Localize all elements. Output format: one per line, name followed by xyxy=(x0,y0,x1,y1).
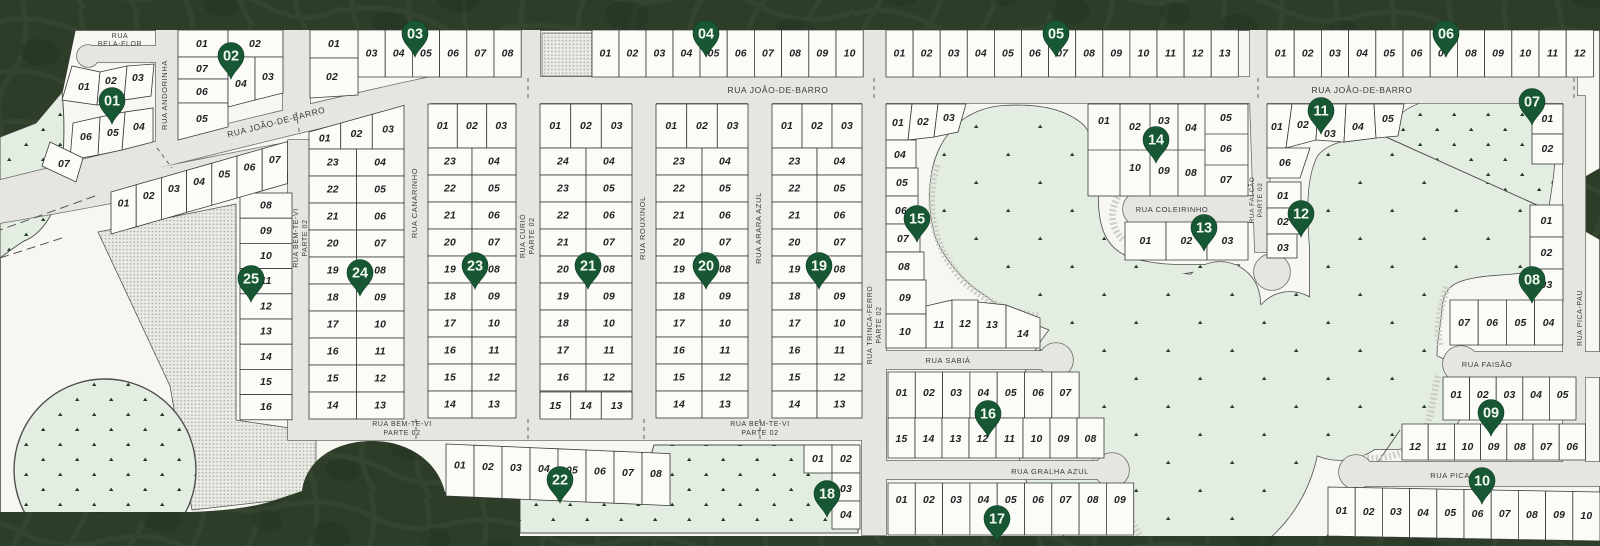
svg-text:10: 10 xyxy=(1138,49,1150,60)
svg-text:12: 12 xyxy=(719,373,731,384)
svg-text:07: 07 xyxy=(374,239,387,250)
svg-text:05: 05 xyxy=(107,128,119,139)
svg-text:16: 16 xyxy=(327,347,339,358)
svg-text:RUA JOÃO-DE-BARRO: RUA JOÃO-DE-BARRO xyxy=(1312,85,1413,95)
svg-text:11: 11 xyxy=(933,320,944,331)
svg-text:17: 17 xyxy=(989,512,1005,528)
svg-text:05: 05 xyxy=(196,114,208,125)
svg-text:23: 23 xyxy=(788,157,801,168)
svg-text:PARTE 02: PARTE 02 xyxy=(1257,183,1264,218)
svg-text:05: 05 xyxy=(834,184,846,195)
svg-text:01: 01 xyxy=(319,133,331,144)
svg-text:18: 18 xyxy=(327,293,339,304)
svg-text:07: 07 xyxy=(1060,388,1073,399)
svg-text:03: 03 xyxy=(366,49,378,60)
svg-text:04: 04 xyxy=(235,79,247,90)
svg-text:02: 02 xyxy=(1181,236,1193,247)
svg-text:02: 02 xyxy=(923,495,935,506)
svg-text:06: 06 xyxy=(1220,144,1232,155)
svg-text:15: 15 xyxy=(896,434,908,445)
svg-text:03: 03 xyxy=(510,463,522,474)
svg-text:06: 06 xyxy=(594,467,606,478)
svg-text:10: 10 xyxy=(1474,474,1490,490)
svg-text:02: 02 xyxy=(1541,248,1553,259)
svg-text:19: 19 xyxy=(557,292,569,303)
svg-text:03: 03 xyxy=(654,49,666,60)
svg-text:08: 08 xyxy=(789,49,801,60)
svg-text:12: 12 xyxy=(488,373,500,384)
svg-text:19: 19 xyxy=(673,265,685,276)
svg-text:05: 05 xyxy=(488,184,500,195)
svg-text:02: 02 xyxy=(840,454,852,465)
svg-text:11: 11 xyxy=(488,346,499,357)
svg-text:20: 20 xyxy=(698,259,714,275)
svg-text:08: 08 xyxy=(1526,510,1538,521)
svg-text:01: 01 xyxy=(781,121,793,132)
svg-text:01: 01 xyxy=(1542,114,1554,125)
svg-text:03: 03 xyxy=(943,113,955,124)
svg-text:09: 09 xyxy=(488,292,500,303)
svg-text:04: 04 xyxy=(978,388,990,399)
svg-text:17: 17 xyxy=(327,320,340,331)
svg-text:04: 04 xyxy=(1417,508,1429,519)
svg-text:14: 14 xyxy=(789,400,801,411)
svg-text:RUA: RUA xyxy=(112,33,129,40)
svg-text:05: 05 xyxy=(1383,49,1395,60)
svg-text:RUA SABIÁ: RUA SABIÁ xyxy=(926,356,971,365)
svg-text:13: 13 xyxy=(1219,49,1231,60)
svg-text:07: 07 xyxy=(1524,95,1540,111)
svg-text:10: 10 xyxy=(374,320,386,331)
svg-text:13: 13 xyxy=(488,400,500,411)
svg-text:03: 03 xyxy=(495,121,507,132)
svg-text:03: 03 xyxy=(262,72,274,83)
svg-text:01: 01 xyxy=(896,495,908,506)
svg-text:02: 02 xyxy=(1542,144,1554,155)
svg-text:19: 19 xyxy=(789,265,801,276)
svg-text:06: 06 xyxy=(1486,318,1498,329)
svg-text:05: 05 xyxy=(1005,495,1017,506)
svg-text:05: 05 xyxy=(1005,388,1017,399)
svg-text:08: 08 xyxy=(834,265,846,276)
svg-text:19: 19 xyxy=(327,266,339,277)
svg-text:06: 06 xyxy=(1279,158,1291,169)
svg-text:06: 06 xyxy=(1032,495,1044,506)
svg-text:22: 22 xyxy=(556,211,569,222)
svg-text:06: 06 xyxy=(244,162,256,173)
svg-text:04: 04 xyxy=(975,49,987,60)
svg-text:10: 10 xyxy=(719,319,731,330)
svg-text:16: 16 xyxy=(980,407,996,423)
svg-text:07: 07 xyxy=(196,64,209,75)
svg-text:09: 09 xyxy=(899,293,911,304)
svg-text:08: 08 xyxy=(488,265,500,276)
svg-text:04: 04 xyxy=(1185,123,1197,134)
svg-text:14: 14 xyxy=(673,400,685,411)
svg-text:12: 12 xyxy=(260,301,272,312)
svg-text:10: 10 xyxy=(260,251,272,262)
svg-text:15: 15 xyxy=(549,401,561,412)
svg-text:02: 02 xyxy=(249,39,261,50)
svg-text:05: 05 xyxy=(1444,508,1456,519)
svg-text:03: 03 xyxy=(727,121,739,132)
svg-text:06: 06 xyxy=(834,211,846,222)
svg-text:08: 08 xyxy=(1087,495,1099,506)
svg-text:RUA FALCÃO: RUA FALCÃO xyxy=(1247,177,1256,224)
svg-text:07: 07 xyxy=(1540,442,1553,453)
svg-text:11: 11 xyxy=(1547,49,1558,60)
svg-text:RUA BEM-TE-VI: RUA BEM-TE-VI xyxy=(293,208,300,268)
svg-text:14: 14 xyxy=(1148,133,1164,149)
svg-text:13: 13 xyxy=(374,401,386,412)
svg-text:RUA FAISÃO: RUA FAISÃO xyxy=(1462,360,1513,369)
svg-text:13: 13 xyxy=(986,320,998,331)
svg-text:07: 07 xyxy=(603,238,616,249)
svg-text:15: 15 xyxy=(909,212,925,228)
svg-text:05: 05 xyxy=(1557,390,1569,401)
svg-text:17: 17 xyxy=(444,319,457,330)
svg-text:10: 10 xyxy=(488,319,500,330)
svg-text:05: 05 xyxy=(896,178,908,189)
svg-text:01: 01 xyxy=(454,461,466,472)
svg-text:10: 10 xyxy=(1129,163,1141,174)
svg-text:09: 09 xyxy=(1110,49,1122,60)
svg-text:08: 08 xyxy=(502,49,514,60)
svg-text:16: 16 xyxy=(260,402,272,413)
svg-text:09: 09 xyxy=(1058,434,1070,445)
svg-text:RUA COLEIRINHO: RUA COLEIRINHO xyxy=(1136,205,1209,214)
svg-text:10: 10 xyxy=(1462,442,1474,453)
svg-text:09: 09 xyxy=(1488,442,1500,453)
svg-text:16: 16 xyxy=(789,346,801,357)
svg-text:01: 01 xyxy=(1277,191,1289,202)
svg-text:11: 11 xyxy=(603,346,614,357)
svg-text:12: 12 xyxy=(1574,49,1586,60)
svg-text:15: 15 xyxy=(260,377,272,388)
svg-text:08: 08 xyxy=(898,262,910,273)
svg-text:03: 03 xyxy=(611,121,623,132)
svg-text:21: 21 xyxy=(556,238,569,249)
svg-text:03: 03 xyxy=(1329,49,1341,60)
svg-text:09: 09 xyxy=(834,292,846,303)
svg-text:24: 24 xyxy=(556,157,569,168)
svg-text:21: 21 xyxy=(788,211,801,222)
svg-text:RUA CANARINHO: RUA CANARINHO xyxy=(410,168,419,238)
svg-text:04: 04 xyxy=(719,157,731,168)
svg-text:04: 04 xyxy=(193,177,205,188)
svg-text:12: 12 xyxy=(959,319,971,330)
svg-text:19: 19 xyxy=(811,259,827,275)
svg-text:PARTE 02: PARTE 02 xyxy=(302,219,309,256)
svg-text:02: 02 xyxy=(1477,390,1489,401)
svg-text:04: 04 xyxy=(681,49,693,60)
svg-text:01: 01 xyxy=(812,454,824,465)
svg-text:05: 05 xyxy=(603,184,615,195)
svg-text:05: 05 xyxy=(1515,318,1527,329)
svg-text:15: 15 xyxy=(444,373,456,384)
svg-text:16: 16 xyxy=(673,346,685,357)
svg-text:01: 01 xyxy=(1450,390,1462,401)
svg-text:21: 21 xyxy=(580,259,596,275)
svg-text:07: 07 xyxy=(1499,509,1512,520)
svg-text:03: 03 xyxy=(1277,243,1289,254)
svg-text:03: 03 xyxy=(950,388,962,399)
svg-text:07: 07 xyxy=(1458,318,1471,329)
svg-text:07: 07 xyxy=(622,468,635,479)
svg-text:02: 02 xyxy=(580,121,592,132)
svg-text:01: 01 xyxy=(104,94,120,110)
svg-text:02: 02 xyxy=(105,76,117,87)
svg-text:02: 02 xyxy=(1363,507,1375,518)
svg-text:04: 04 xyxy=(1530,390,1542,401)
svg-text:12: 12 xyxy=(1192,49,1204,60)
svg-text:07: 07 xyxy=(719,238,732,249)
svg-text:14: 14 xyxy=(923,434,935,445)
svg-text:09: 09 xyxy=(1158,166,1170,177)
svg-text:02: 02 xyxy=(351,129,363,140)
svg-text:06: 06 xyxy=(719,211,731,222)
svg-text:06: 06 xyxy=(1032,388,1044,399)
svg-text:09: 09 xyxy=(1553,510,1565,521)
svg-text:02: 02 xyxy=(923,388,935,399)
svg-text:04: 04 xyxy=(1543,318,1555,329)
svg-text:03: 03 xyxy=(841,121,853,132)
svg-text:06: 06 xyxy=(196,87,208,98)
svg-text:11: 11 xyxy=(1436,442,1447,453)
svg-text:23: 23 xyxy=(467,259,483,275)
svg-text:12: 12 xyxy=(834,373,846,384)
svg-text:07: 07 xyxy=(834,238,847,249)
svg-text:24: 24 xyxy=(352,266,368,282)
svg-text:RUA GRALHA AZUL: RUA GRALHA AZUL xyxy=(1011,467,1089,476)
svg-text:13: 13 xyxy=(260,327,272,338)
svg-text:06: 06 xyxy=(1411,49,1423,60)
svg-text:02: 02 xyxy=(223,49,239,65)
svg-text:11: 11 xyxy=(834,346,845,357)
svg-text:06: 06 xyxy=(488,211,500,222)
svg-text:09: 09 xyxy=(260,226,272,237)
svg-text:07: 07 xyxy=(488,238,501,249)
svg-text:01: 01 xyxy=(665,121,677,132)
svg-text:RUA BEM-TE-VI: RUA BEM-TE-VI xyxy=(372,421,432,428)
svg-text:09: 09 xyxy=(1492,49,1504,60)
svg-text:06: 06 xyxy=(80,132,92,143)
svg-text:07: 07 xyxy=(269,155,282,166)
svg-text:11: 11 xyxy=(1004,434,1015,445)
svg-text:06: 06 xyxy=(603,211,615,222)
svg-text:05: 05 xyxy=(374,185,386,196)
svg-text:19: 19 xyxy=(444,265,456,276)
svg-text:07: 07 xyxy=(897,234,910,245)
svg-text:05: 05 xyxy=(1382,114,1394,125)
svg-text:04: 04 xyxy=(603,157,615,168)
svg-text:10: 10 xyxy=(844,49,856,60)
svg-text:13: 13 xyxy=(834,400,846,411)
svg-text:04: 04 xyxy=(698,27,714,43)
svg-text:01: 01 xyxy=(328,39,340,50)
svg-text:RUA TRINCA-FERRO: RUA TRINCA-FERRO xyxy=(867,286,874,365)
svg-text:06: 06 xyxy=(1472,509,1484,520)
svg-text:RUA CURIÓ: RUA CURIÓ xyxy=(518,214,527,258)
svg-text:13: 13 xyxy=(950,434,962,445)
svg-text:14: 14 xyxy=(580,401,592,412)
svg-text:09: 09 xyxy=(1114,495,1126,506)
svg-text:12: 12 xyxy=(1409,442,1421,453)
svg-text:10: 10 xyxy=(1519,49,1531,60)
svg-text:02: 02 xyxy=(1302,49,1314,60)
svg-text:18: 18 xyxy=(673,292,685,303)
svg-text:02: 02 xyxy=(143,191,155,202)
svg-text:03: 03 xyxy=(407,27,423,43)
svg-text:06: 06 xyxy=(447,49,459,60)
svg-text:20: 20 xyxy=(672,238,685,249)
svg-text:08: 08 xyxy=(260,201,272,212)
svg-text:06: 06 xyxy=(1029,49,1041,60)
svg-text:01: 01 xyxy=(549,121,561,132)
svg-text:06: 06 xyxy=(1566,442,1578,453)
svg-text:21: 21 xyxy=(672,211,685,222)
svg-text:04: 04 xyxy=(894,150,906,161)
svg-text:20: 20 xyxy=(788,238,801,249)
svg-text:03: 03 xyxy=(132,73,144,84)
svg-text:04: 04 xyxy=(374,158,386,169)
svg-text:03: 03 xyxy=(1324,129,1336,140)
svg-text:01: 01 xyxy=(894,49,906,60)
svg-text:14: 14 xyxy=(260,352,272,363)
svg-text:01: 01 xyxy=(437,121,449,132)
svg-text:RUA ROUXINOL: RUA ROUXINOL xyxy=(638,196,647,260)
svg-text:08: 08 xyxy=(1524,273,1540,289)
svg-text:PARTE 02: PARTE 02 xyxy=(876,306,883,343)
svg-text:09: 09 xyxy=(374,293,386,304)
svg-text:07: 07 xyxy=(762,49,775,60)
svg-text:01: 01 xyxy=(118,198,130,209)
svg-text:07: 07 xyxy=(1060,495,1073,506)
svg-text:22: 22 xyxy=(443,184,456,195)
svg-text:12: 12 xyxy=(374,374,386,385)
svg-text:08: 08 xyxy=(719,265,731,276)
svg-text:04: 04 xyxy=(1352,122,1364,133)
svg-text:12: 12 xyxy=(603,373,615,384)
svg-text:03: 03 xyxy=(840,484,852,495)
svg-text:13: 13 xyxy=(1196,221,1212,237)
svg-text:18: 18 xyxy=(789,292,801,303)
svg-text:06: 06 xyxy=(735,49,747,60)
svg-text:03: 03 xyxy=(1158,116,1170,127)
svg-text:12: 12 xyxy=(977,434,989,445)
svg-text:08: 08 xyxy=(603,265,615,276)
svg-text:10: 10 xyxy=(1580,511,1592,522)
svg-text:02: 02 xyxy=(466,121,478,132)
svg-text:17: 17 xyxy=(789,319,802,330)
svg-text:15: 15 xyxy=(327,374,339,385)
svg-text:RUA ANDORINHA: RUA ANDORINHA xyxy=(160,60,169,130)
svg-text:02: 02 xyxy=(696,121,708,132)
svg-text:03: 03 xyxy=(1222,236,1234,247)
svg-text:02: 02 xyxy=(921,49,933,60)
svg-text:13: 13 xyxy=(719,400,731,411)
svg-text:17: 17 xyxy=(557,346,570,357)
svg-text:01: 01 xyxy=(1275,49,1287,60)
svg-text:05: 05 xyxy=(719,184,731,195)
svg-text:BELA-FLOR: BELA-FLOR xyxy=(98,41,142,48)
svg-text:20: 20 xyxy=(443,238,456,249)
svg-text:04: 04 xyxy=(133,122,145,133)
svg-text:09: 09 xyxy=(816,49,828,60)
svg-text:15: 15 xyxy=(673,373,685,384)
svg-text:02: 02 xyxy=(1297,120,1309,131)
svg-text:04: 04 xyxy=(978,495,990,506)
svg-text:05: 05 xyxy=(420,49,432,60)
svg-text:17: 17 xyxy=(673,319,686,330)
svg-text:09: 09 xyxy=(719,292,731,303)
svg-text:PARTE 02: PARTE 02 xyxy=(383,430,420,437)
svg-text:21: 21 xyxy=(443,211,456,222)
svg-text:23: 23 xyxy=(672,157,685,168)
svg-text:23: 23 xyxy=(556,184,569,195)
svg-text:21: 21 xyxy=(326,212,339,223)
svg-text:08: 08 xyxy=(1083,49,1095,60)
svg-text:11: 11 xyxy=(1165,49,1176,60)
svg-text:04: 04 xyxy=(488,157,500,168)
svg-text:01: 01 xyxy=(1541,216,1553,227)
svg-text:10: 10 xyxy=(834,319,846,330)
svg-text:05: 05 xyxy=(1048,27,1064,43)
svg-text:08: 08 xyxy=(374,266,386,277)
svg-text:08: 08 xyxy=(1465,49,1477,60)
svg-text:02: 02 xyxy=(1277,217,1289,228)
svg-text:08: 08 xyxy=(1085,434,1097,445)
svg-text:02: 02 xyxy=(627,49,639,60)
svg-text:16: 16 xyxy=(557,373,569,384)
svg-text:05: 05 xyxy=(1002,49,1014,60)
svg-text:20: 20 xyxy=(556,265,569,276)
svg-text:01: 01 xyxy=(196,39,208,50)
svg-text:03: 03 xyxy=(1390,507,1402,518)
svg-text:22: 22 xyxy=(326,185,339,196)
svg-text:03: 03 xyxy=(168,184,180,195)
svg-text:23: 23 xyxy=(443,157,456,168)
svg-text:01: 01 xyxy=(896,388,908,399)
svg-text:07: 07 xyxy=(474,49,487,60)
svg-text:22: 22 xyxy=(788,184,801,195)
svg-text:06: 06 xyxy=(1438,27,1454,43)
svg-text:20: 20 xyxy=(326,239,339,250)
svg-text:09: 09 xyxy=(1483,406,1499,422)
svg-text:01: 01 xyxy=(892,118,904,129)
svg-text:01: 01 xyxy=(600,49,612,60)
svg-text:09: 09 xyxy=(603,292,615,303)
svg-text:01: 01 xyxy=(78,82,90,93)
svg-text:RUA ARARA AZUL: RUA ARARA AZUL xyxy=(754,192,763,264)
svg-text:01: 01 xyxy=(1336,506,1348,517)
svg-text:11: 11 xyxy=(1313,104,1328,120)
svg-text:11: 11 xyxy=(375,347,386,358)
svg-text:18: 18 xyxy=(444,292,456,303)
svg-text:16: 16 xyxy=(444,346,456,357)
svg-text:10: 10 xyxy=(899,327,911,338)
svg-text:14: 14 xyxy=(327,401,339,412)
svg-text:22: 22 xyxy=(672,184,685,195)
svg-text:03: 03 xyxy=(382,124,394,135)
svg-text:23: 23 xyxy=(326,158,339,169)
svg-text:02: 02 xyxy=(811,121,823,132)
svg-text:01: 01 xyxy=(1098,116,1110,127)
svg-text:18: 18 xyxy=(557,319,569,330)
svg-text:03: 03 xyxy=(950,495,962,506)
svg-text:RUA JOÃO-DE-BARRO: RUA JOÃO-DE-BARRO xyxy=(728,85,829,95)
svg-text:03: 03 xyxy=(948,49,960,60)
